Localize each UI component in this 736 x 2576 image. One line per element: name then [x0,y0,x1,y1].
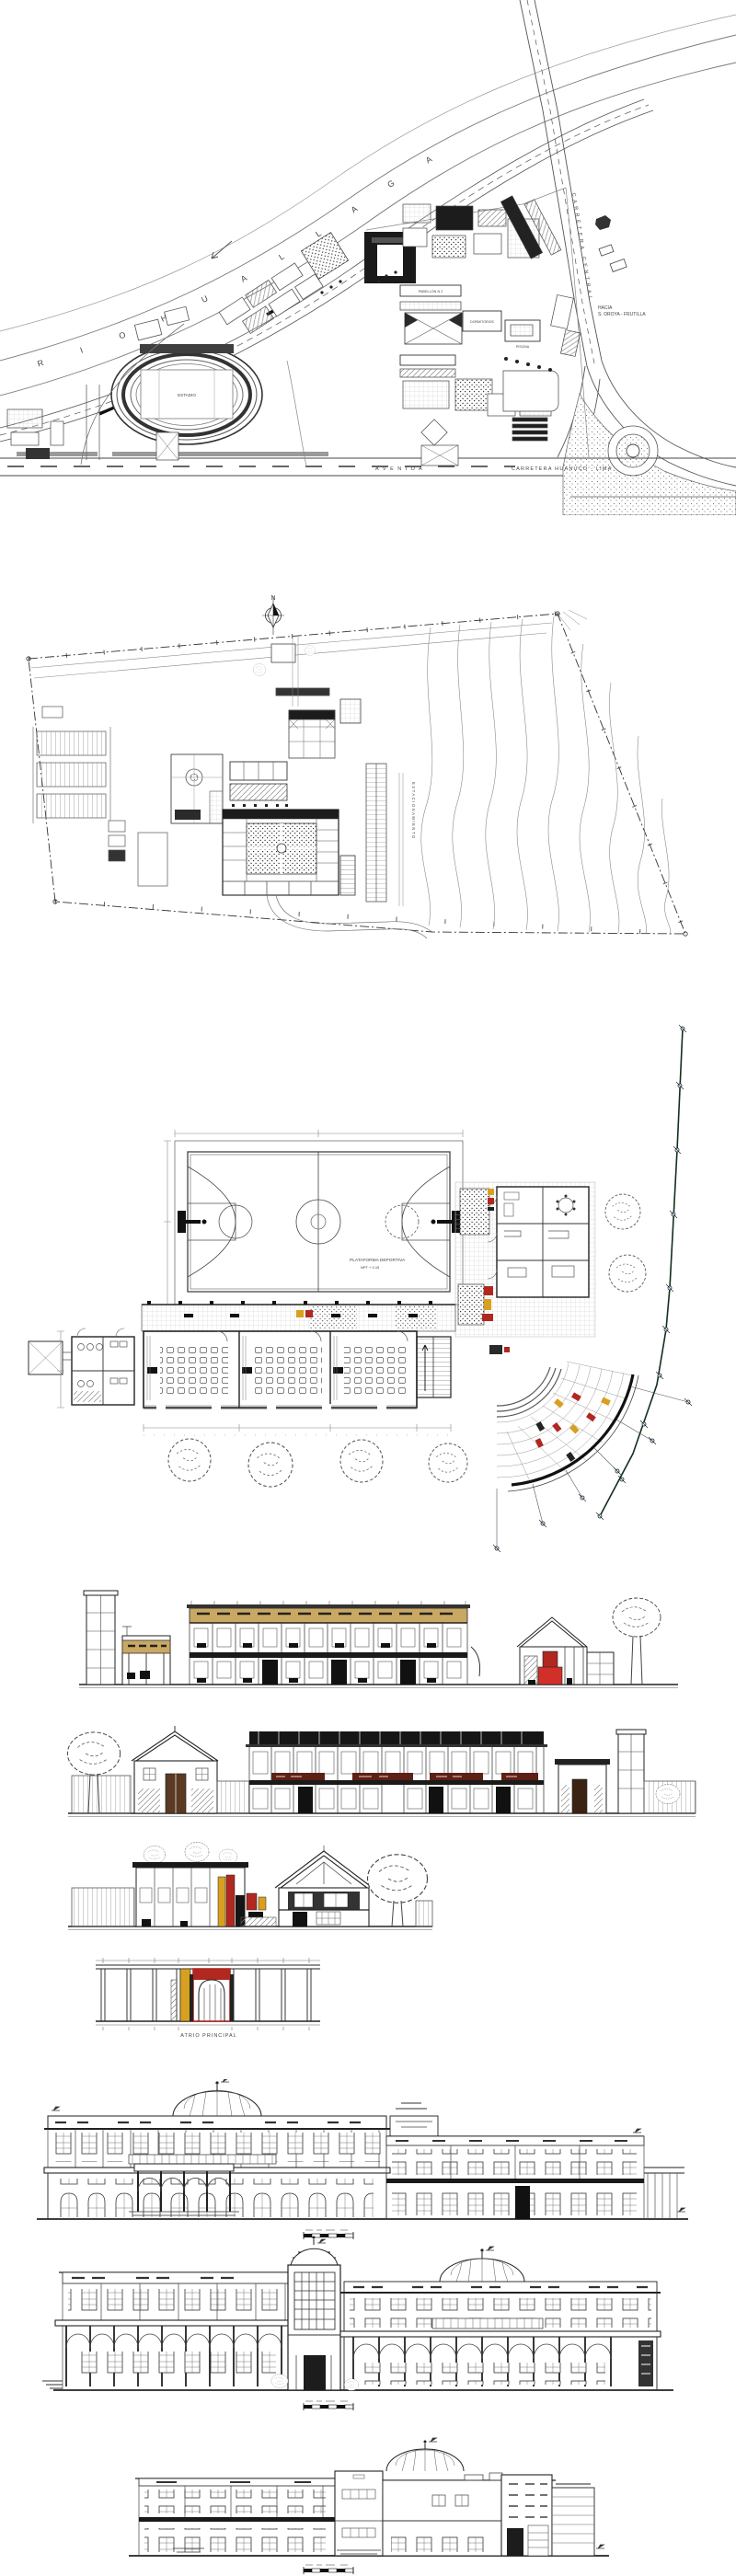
elev3-dome [386,2438,464,2471]
right-edge-buildings [551,295,581,357]
main-elevations [0,2079,736,2576]
elev-a-main-building [187,1601,480,1685]
dormitory-block: DORMITORIOS [463,311,501,331]
plaza-mosaic [535,1392,611,1461]
site-plan-2: N [0,515,736,1012]
elev-a-tree [613,1598,661,1685]
scale-bar-2 [304,2401,353,2410]
mid-bars [230,762,288,807]
parking-label: ESTACIONAMIENTO [411,782,416,840]
courtyard-building [223,810,355,895]
carretera-label: CARRETERA HUANUCO - LIMA [512,466,612,472]
lot-boundary [27,610,687,936]
tree [605,1194,640,1229]
elev2-central-tower [288,2237,340,2391]
elev1-left-block [44,2116,438,2219]
classrooms [144,1331,417,1410]
west-parking [33,707,167,886]
elev-b-gatehouse [132,1726,218,1813]
x-courtyard [405,313,462,344]
main-elevation-2 [42,2237,673,2411]
elev1-terrace [644,2168,684,2219]
pool: PISCINA [505,320,540,349]
elev-b-right-gatehouse [555,1759,610,1813]
pool-label: PISCINA [516,345,530,349]
service-block [29,1328,134,1405]
elev-b-main-building [246,1731,547,1813]
bottom-trees [168,1439,467,1487]
elev3-center-tower [335,2471,383,2556]
stadium-label: ESTADIO [178,393,196,397]
basketball-court [164,1130,463,1305]
campus-buildings: PABELLON N 2 DORMITORIOS PISCINA [7,188,589,466]
elev2-dome [440,2247,524,2282]
pavilion-bars: PABELLON N 2 [400,285,462,377]
fountain-patio [171,754,223,823]
highway-label: CARRETERA CENTRAL [570,192,593,303]
elev1-dome [173,2079,261,2116]
contour-lines [421,616,671,935]
river: R I O H U A L L A G A [0,15,736,396]
elev-a-annex [122,1627,170,1685]
north-arrow: N [262,595,284,635]
main-elevation-3 [129,2438,609,2574]
corridor [142,1301,455,1331]
west-access [7,385,99,460]
north-cluster [403,196,561,259]
elev-b-tower [616,1730,646,1813]
tree [609,1255,646,1292]
main-elevation-1 [37,2079,688,2239]
elev-c-kiosk [241,1893,276,1926]
elev-c-gabled-building [275,1846,373,1926]
roadside-structure [595,215,611,230]
admin-rooms-block [455,1182,595,1337]
driveway [267,895,432,938]
court-label: PLATAFORMA DEPORTIVA [350,1258,406,1263]
elev-b-fence-left [72,1776,131,1813]
elevations-sheet: ATRIO PRINCIPAL [0,1564,736,2079]
elevation-b [67,1726,696,1817]
pavilion-label: PABELLON N 2 [419,290,443,293]
elev-a-tower [84,1591,118,1685]
svg-text:HACIA: HACIA [598,305,613,311]
elev-d-portal [171,1969,234,2021]
avenue-label: A V E N I D A [375,466,423,472]
east-parking: ESTACIONAMIENTO [366,764,416,906]
scale-bar-3 [304,2565,353,2574]
river-flow-arrow [212,241,232,259]
elev-c-fence [72,1888,134,1926]
elev3-right-block [383,2473,604,2556]
svg-text:S. OROYA - FRUTILLA: S. OROYA - FRUTILLA [598,312,646,317]
site-plan-1: R I O H U A L L A G A CARRETERA CENTRAL … [0,0,736,515]
stairs [417,1337,451,1397]
basketball-hoops [178,1211,460,1233]
elevation-c [68,1843,432,1930]
drawing-sheet: R I O H U A L L A G A CARRETERA CENTRAL … [0,0,736,2576]
stadium: ESTADIO [111,344,262,444]
direction-note: HACIA S. OROYA - FRUTILLA [598,305,646,317]
upper-buildings [253,635,361,758]
elev3-stair-tower [501,2475,552,2556]
elevation-d: ATRIO PRINCIPAL [96,1958,320,2039]
elev2-left-wing [42,2272,293,2390]
atrio-label: ATRIO PRINCIPAL [180,2033,237,2039]
dorm-label: DORMITORIOS [470,320,494,324]
elev3-left-wing [135,2478,335,2556]
floor-plan: PLATAFORMA DEPORTIVA NPT + 0.15 [0,1012,736,1564]
court-sublabel: NPT + 0.15 [361,1265,380,1270]
elev-a-pavilion [517,1617,614,1685]
scale-bar-1 [304,2230,353,2239]
elev3-annex [552,2484,594,2556]
elevation-a [79,1591,678,1688]
elev-c-building1 [132,1843,248,1927]
